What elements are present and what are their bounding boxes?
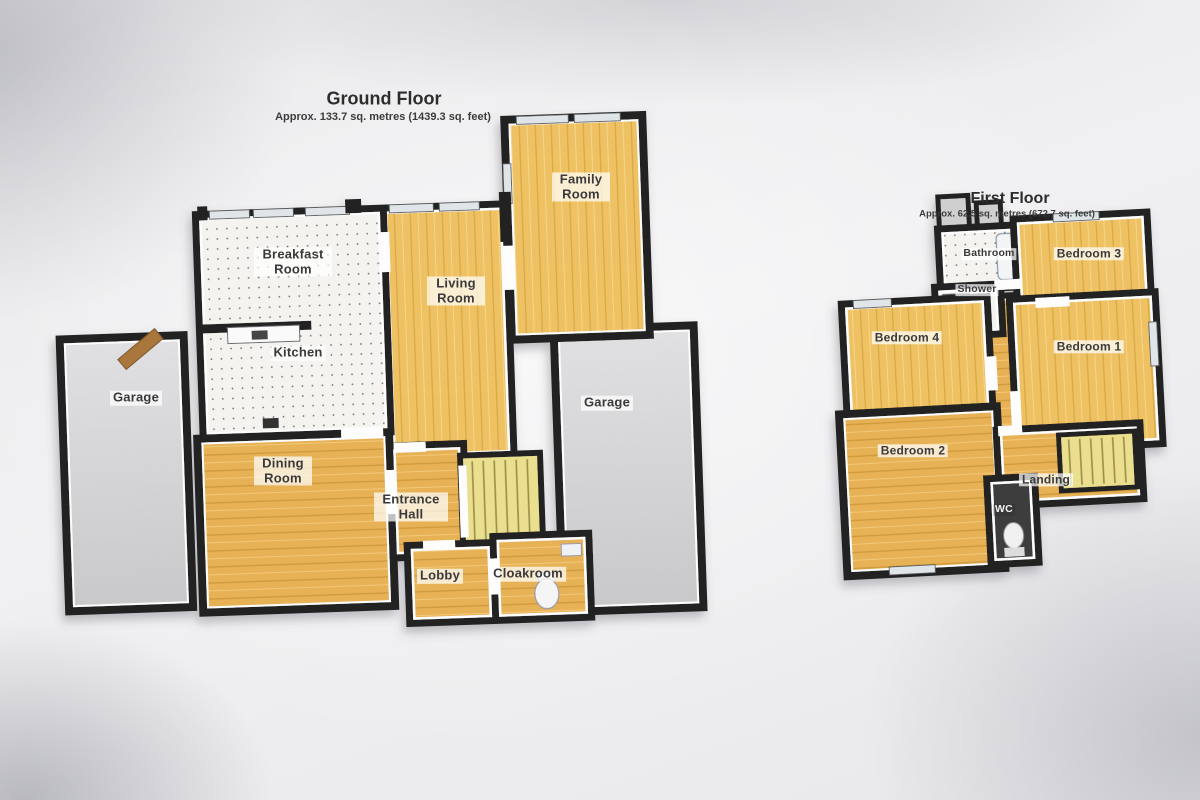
label-family-room: Family Room — [552, 172, 610, 201]
label-bedroom-2: Bedroom 2 — [878, 444, 948, 457]
label-garage-left: Garage — [110, 391, 162, 406]
label-wc: WC — [993, 504, 1015, 516]
first-floor-title: First Floor — [970, 190, 1049, 208]
label-living-room: Living Room — [427, 276, 485, 305]
label-cloakroom: Cloakroom — [490, 567, 566, 582]
label-layer: Ground Floor Approx. 133.7 sq. metres (1… — [0, 0, 1200, 800]
label-garage-right: Garage — [581, 396, 633, 411]
label-bathroom: Bathroom — [961, 248, 1016, 260]
label-dining-room: Dining Room — [254, 456, 312, 485]
label-breakfast-room: Breakfast Room — [254, 247, 332, 276]
label-bedroom-1: Bedroom 1 — [1054, 340, 1124, 353]
ground-floor-subtitle: Approx. 133.7 sq. metres (1439.3 sq. fee… — [275, 111, 491, 123]
label-bedroom-4: Bedroom 4 — [872, 331, 942, 344]
label-kitchen: Kitchen — [270, 346, 325, 361]
label-entrance-hall: Entrance Hall — [374, 492, 448, 521]
ground-floor-title: Ground Floor — [327, 89, 442, 110]
label-landing: Landing — [1019, 473, 1073, 486]
label-shower: Shower — [955, 284, 998, 296]
label-lobby: Lobby — [417, 569, 463, 584]
first-floor-subtitle: Approx. 62.5 sq. metres (672.7 sq. feet) — [919, 209, 1095, 220]
label-bedroom-3: Bedroom 3 — [1054, 247, 1124, 260]
photographed-floor-plan-page: Ground Floor Approx. 133.7 sq. metres (1… — [0, 0, 1200, 800]
